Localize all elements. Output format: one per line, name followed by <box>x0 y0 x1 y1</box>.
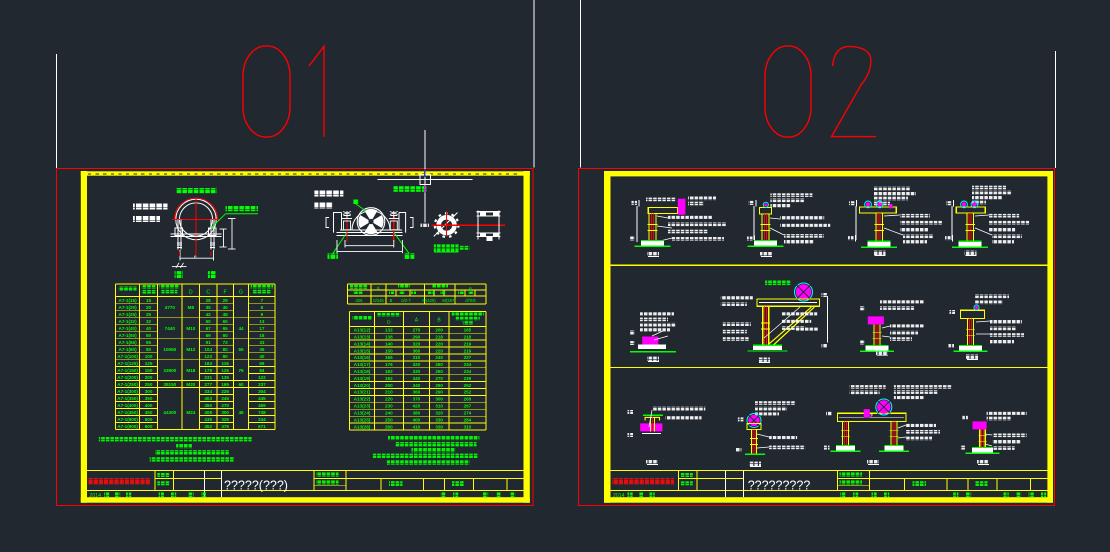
svg-text:A13(20): A13(20) <box>354 383 371 388</box>
svg-text:290: 290 <box>435 390 443 395</box>
svg-text:M8: M8 <box>188 305 195 310</box>
svg-text:33900: 33900 <box>163 368 176 373</box>
svg-text:245: 245 <box>221 396 229 401</box>
svg-text:A7-1(500): A7-1(500) <box>117 417 138 422</box>
svg-text:A7-1(80): A7-1(80) <box>119 347 138 352</box>
svg-text:69: 69 <box>206 333 212 338</box>
svg-text:40: 40 <box>223 305 229 310</box>
svg-text:A13(13): A13(13) <box>354 334 371 339</box>
svg-text:132: 132 <box>385 328 393 333</box>
svg-text:73: 73 <box>223 340 229 345</box>
svg-text:60: 60 <box>206 319 212 324</box>
svg-text:260: 260 <box>385 424 393 429</box>
svg-text:A7-1(350): A7-1(350) <box>117 396 138 401</box>
svg-text:200: 200 <box>435 328 443 333</box>
svg-text:252: 252 <box>464 383 472 388</box>
svg-text:8: 8 <box>261 305 264 310</box>
svg-text:290: 290 <box>413 334 421 339</box>
svg-text:240: 240 <box>385 410 393 415</box>
svg-text:A13(23): A13(23) <box>354 404 371 409</box>
svg-text:370: 370 <box>413 397 421 402</box>
svg-text:334: 334 <box>204 389 212 394</box>
svg-text:300: 300 <box>221 410 229 415</box>
svg-text:325: 325 <box>221 417 229 422</box>
svg-text:84: 84 <box>259 368 265 373</box>
svg-text:210: 210 <box>385 390 393 395</box>
svg-text:178: 178 <box>204 368 212 373</box>
svg-text:408: 408 <box>204 410 212 415</box>
svg-text:150: 150 <box>385 348 393 353</box>
svg-text:M10: M10 <box>186 326 195 331</box>
svg-text:310: 310 <box>435 404 443 409</box>
svg-text:192: 192 <box>385 376 393 381</box>
svg-text:220: 220 <box>385 397 393 402</box>
svg-text:450: 450 <box>204 403 212 408</box>
svg-text:2014: 2014 <box>90 493 102 499</box>
svg-text:360: 360 <box>413 348 421 353</box>
svg-text:45: 45 <box>223 312 229 317</box>
svg-text:250: 250 <box>385 417 393 422</box>
svg-text:220: 220 <box>435 348 443 353</box>
svg-text:125: 125 <box>145 361 153 366</box>
svg-text:267: 267 <box>464 404 472 409</box>
svg-text:400: 400 <box>145 403 153 408</box>
svg-text:500: 500 <box>145 417 153 422</box>
svg-text:M12: M12 <box>186 347 195 352</box>
svg-text:A13(19): A13(19) <box>354 376 371 381</box>
svg-text:200: 200 <box>145 375 153 380</box>
svg-text:F: F <box>224 290 227 296</box>
svg-text:459: 459 <box>258 403 266 408</box>
svg-text:55: 55 <box>238 347 244 352</box>
svg-text:D: D <box>189 290 193 296</box>
svg-text:7440: 7440 <box>165 326 176 331</box>
svg-text:219: 219 <box>464 341 472 346</box>
svg-text:250: 250 <box>145 382 153 387</box>
svg-text:A7-1(200): A7-1(200) <box>117 375 138 380</box>
svg-text:234: 234 <box>464 362 472 367</box>
svg-text:9: 9 <box>261 312 264 317</box>
svg-text:320: 320 <box>413 341 421 346</box>
svg-text:230: 230 <box>385 404 393 409</box>
svg-text:20: 20 <box>146 305 152 310</box>
svg-text:231: 231 <box>204 375 212 380</box>
svg-text:69: 69 <box>259 361 265 366</box>
svg-text:450: 450 <box>145 410 153 415</box>
svg-text:13: 13 <box>259 319 265 324</box>
svg-text:A7-1(600): A7-1(600) <box>117 424 138 429</box>
svg-text:403: 403 <box>204 396 212 401</box>
svg-text:0/2-7: 0/2-7 <box>401 298 411 303</box>
svg-text:138: 138 <box>385 334 393 339</box>
svg-text:A7-1(450): A7-1(450) <box>117 410 138 415</box>
svg-text:748: 748 <box>258 410 266 415</box>
svg-text:260: 260 <box>435 362 443 367</box>
svg-text:60: 60 <box>223 319 229 324</box>
svg-text:A7-1(150): A7-1(150) <box>117 368 138 373</box>
svg-text:360: 360 <box>413 390 421 395</box>
svg-text:123: 123 <box>204 354 212 359</box>
svg-text:A13(12): A13(12) <box>354 328 371 333</box>
svg-text:218: 218 <box>464 334 472 339</box>
svg-text:165: 165 <box>464 328 472 333</box>
svg-text:50: 50 <box>146 333 152 338</box>
svg-text:91: 91 <box>206 340 212 345</box>
svg-text:A7-1(65): A7-1(65) <box>119 340 138 345</box>
svg-text:A13(14): A13(14) <box>354 341 371 346</box>
svg-text:90: 90 <box>223 354 229 359</box>
svg-text:A13(24): A13(24) <box>354 410 371 415</box>
svg-text:A7-1(20): A7-1(20) <box>119 305 138 310</box>
svg-text:?????(???): ?????(???) <box>224 478 288 492</box>
svg-text:375: 375 <box>221 424 229 429</box>
svg-text:65: 65 <box>146 340 152 345</box>
svg-text:G: G <box>239 290 243 296</box>
svg-text:A13(26): A13(26) <box>354 424 371 429</box>
svg-text:300: 300 <box>435 397 443 402</box>
svg-text:320: 320 <box>435 410 443 415</box>
svg-text:270: 270 <box>435 376 443 381</box>
svg-text:40: 40 <box>146 326 152 331</box>
svg-text:35: 35 <box>206 305 212 310</box>
svg-text:237: 237 <box>258 382 266 387</box>
svg-text:0/245: 0/245 <box>373 298 384 303</box>
svg-text:260: 260 <box>435 369 443 374</box>
svg-text:A7-1(15): A7-1(15) <box>119 298 138 303</box>
svg-text:350: 350 <box>145 396 153 401</box>
svg-text:220: 220 <box>435 341 443 346</box>
svg-text:A13(16): A13(16) <box>354 355 371 360</box>
svg-text:310: 310 <box>464 424 472 429</box>
svg-text:60: 60 <box>223 333 229 338</box>
svg-text:A13(18): A13(18) <box>354 369 371 374</box>
svg-text:40: 40 <box>259 354 265 359</box>
svg-text:260: 260 <box>464 397 472 402</box>
svg-text:435: 435 <box>204 417 212 422</box>
svg-text:80: 80 <box>223 347 229 352</box>
svg-text:A7-1(32): A7-1(32) <box>119 319 138 324</box>
svg-text:445: 445 <box>258 396 266 401</box>
svg-text:600: 600 <box>145 424 153 429</box>
svg-text:d70/5: d70/5 <box>465 298 476 303</box>
svg-text:80: 80 <box>146 347 152 352</box>
svg-text:17: 17 <box>259 326 265 331</box>
svg-text:A13(15): A13(15) <box>354 348 371 353</box>
svg-text:67: 67 <box>206 326 212 331</box>
svg-text:D: D <box>387 320 391 326</box>
svg-text:252: 252 <box>464 390 472 395</box>
svg-text:10060: 10060 <box>163 347 176 352</box>
svg-text:35: 35 <box>259 347 265 352</box>
svg-text:A7-1(40): A7-1(40) <box>119 326 138 331</box>
svg-text:44: 44 <box>238 326 244 331</box>
svg-text:39150: 39150 <box>163 382 176 387</box>
svg-text:410: 410 <box>413 424 421 429</box>
svg-text:330: 330 <box>435 424 443 429</box>
svg-text:240: 240 <box>435 355 443 360</box>
svg-text:A13(17): A13(17) <box>354 362 371 367</box>
svg-text:4770: 4770 <box>165 305 176 310</box>
svg-text:A7-1(400): A7-1(400) <box>117 403 138 408</box>
svg-text:452: 452 <box>204 424 212 429</box>
svg-text:330: 330 <box>435 417 443 422</box>
svg-text:F: F <box>870 413 873 418</box>
svg-text:163: 163 <box>204 361 212 366</box>
svg-text:76: 76 <box>238 368 244 373</box>
svg-text:18: 18 <box>259 333 265 338</box>
svg-text:150: 150 <box>145 368 153 373</box>
svg-text:2014: 2014 <box>613 493 625 499</box>
svg-text:671: 671 <box>258 424 266 429</box>
svg-text:M24: M24 <box>186 410 195 415</box>
svg-text:234: 234 <box>464 369 472 374</box>
svg-text:200: 200 <box>385 383 393 388</box>
svg-text:44300: 44300 <box>163 410 176 415</box>
svg-text:218: 218 <box>435 334 443 339</box>
svg-text:420: 420 <box>413 404 421 409</box>
svg-text:277: 277 <box>204 382 212 387</box>
svg-text:d26: d26 <box>356 298 364 303</box>
svg-text:42: 42 <box>206 312 212 317</box>
svg-text:400: 400 <box>413 417 421 422</box>
svg-text:182: 182 <box>385 369 393 374</box>
svg-text:29: 29 <box>223 298 229 303</box>
svg-text:M(420): M(420) <box>422 298 436 303</box>
svg-text:A7-1(250): A7-1(250) <box>117 382 138 387</box>
svg-text:7: 7 <box>261 298 264 303</box>
svg-text:A7-1(25): A7-1(25) <box>119 312 138 317</box>
svg-text:270: 270 <box>413 328 421 333</box>
svg-text:C: C <box>206 290 210 296</box>
svg-text:A13(25): A13(25) <box>354 417 371 422</box>
svg-text:122: 122 <box>258 375 266 380</box>
svg-text:A13(22): A13(22) <box>354 397 371 402</box>
svg-text:46: 46 <box>238 410 244 415</box>
svg-text:380: 380 <box>413 410 421 415</box>
svg-text:239: 239 <box>464 376 472 381</box>
svg-text:166: 166 <box>385 355 393 360</box>
svg-text:104: 104 <box>204 347 212 352</box>
svg-text:165: 165 <box>221 382 229 387</box>
svg-text:226: 226 <box>221 389 229 394</box>
svg-text:100: 100 <box>145 354 153 359</box>
svg-text:A13(21): A13(21) <box>354 390 371 395</box>
svg-text:33: 33 <box>259 340 265 345</box>
svg-text:300: 300 <box>145 389 153 394</box>
svg-text:270: 270 <box>221 403 229 408</box>
svg-text:M20: M20 <box>186 382 195 387</box>
svg-text:60: 60 <box>238 382 244 387</box>
svg-text:176: 176 <box>385 362 393 367</box>
svg-text:25: 25 <box>146 312 152 317</box>
svg-text:B: B <box>390 298 393 303</box>
svg-text:219: 219 <box>464 348 472 353</box>
svg-text:126: 126 <box>221 368 229 373</box>
svg-text:290: 290 <box>435 383 443 388</box>
svg-text:M(257): M(257) <box>442 298 456 303</box>
svg-text:A7-1(300): A7-1(300) <box>117 389 138 394</box>
svg-text:340: 340 <box>413 383 421 388</box>
svg-text:116: 116 <box>221 361 229 366</box>
svg-text:A7-1(100): A7-1(100) <box>117 354 138 359</box>
svg-text:320: 320 <box>413 362 421 367</box>
svg-text:M18: M18 <box>186 368 195 373</box>
svg-text:?????????: ????????? <box>748 478 811 492</box>
svg-text:340: 340 <box>413 376 421 381</box>
svg-text:304: 304 <box>258 389 266 394</box>
svg-text:32: 32 <box>146 319 152 324</box>
svg-text:65: 65 <box>223 326 229 331</box>
svg-text:310: 310 <box>413 355 421 360</box>
svg-text:28: 28 <box>206 298 212 303</box>
svg-text:284: 284 <box>464 417 472 422</box>
svg-text:140: 140 <box>385 341 393 346</box>
svg-text:135: 135 <box>221 375 229 380</box>
svg-text:274: 274 <box>464 410 472 415</box>
svg-text:227: 227 <box>464 355 472 360</box>
svg-text:244: 244 <box>258 417 266 422</box>
svg-text:15: 15 <box>146 298 152 303</box>
svg-text:A7-1(125): A7-1(125) <box>117 361 138 366</box>
svg-text:330: 330 <box>413 369 421 374</box>
svg-text:A7-1(50): A7-1(50) <box>119 333 138 338</box>
